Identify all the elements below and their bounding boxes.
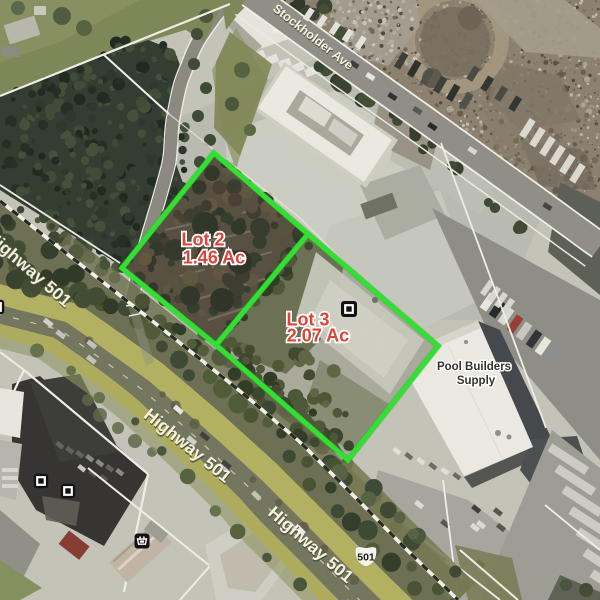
svg-text:2.07 Ac: 2.07 Ac <box>287 326 349 346</box>
svg-text:Lot 2: Lot 2 <box>182 230 225 250</box>
svg-text:Supply: Supply <box>457 375 496 387</box>
svg-text:1.46 Ac: 1.46 Ac <box>183 248 245 268</box>
svg-text:501: 501 <box>357 552 375 564</box>
svg-text:Pool Builders: Pool Builders <box>437 361 511 373</box>
